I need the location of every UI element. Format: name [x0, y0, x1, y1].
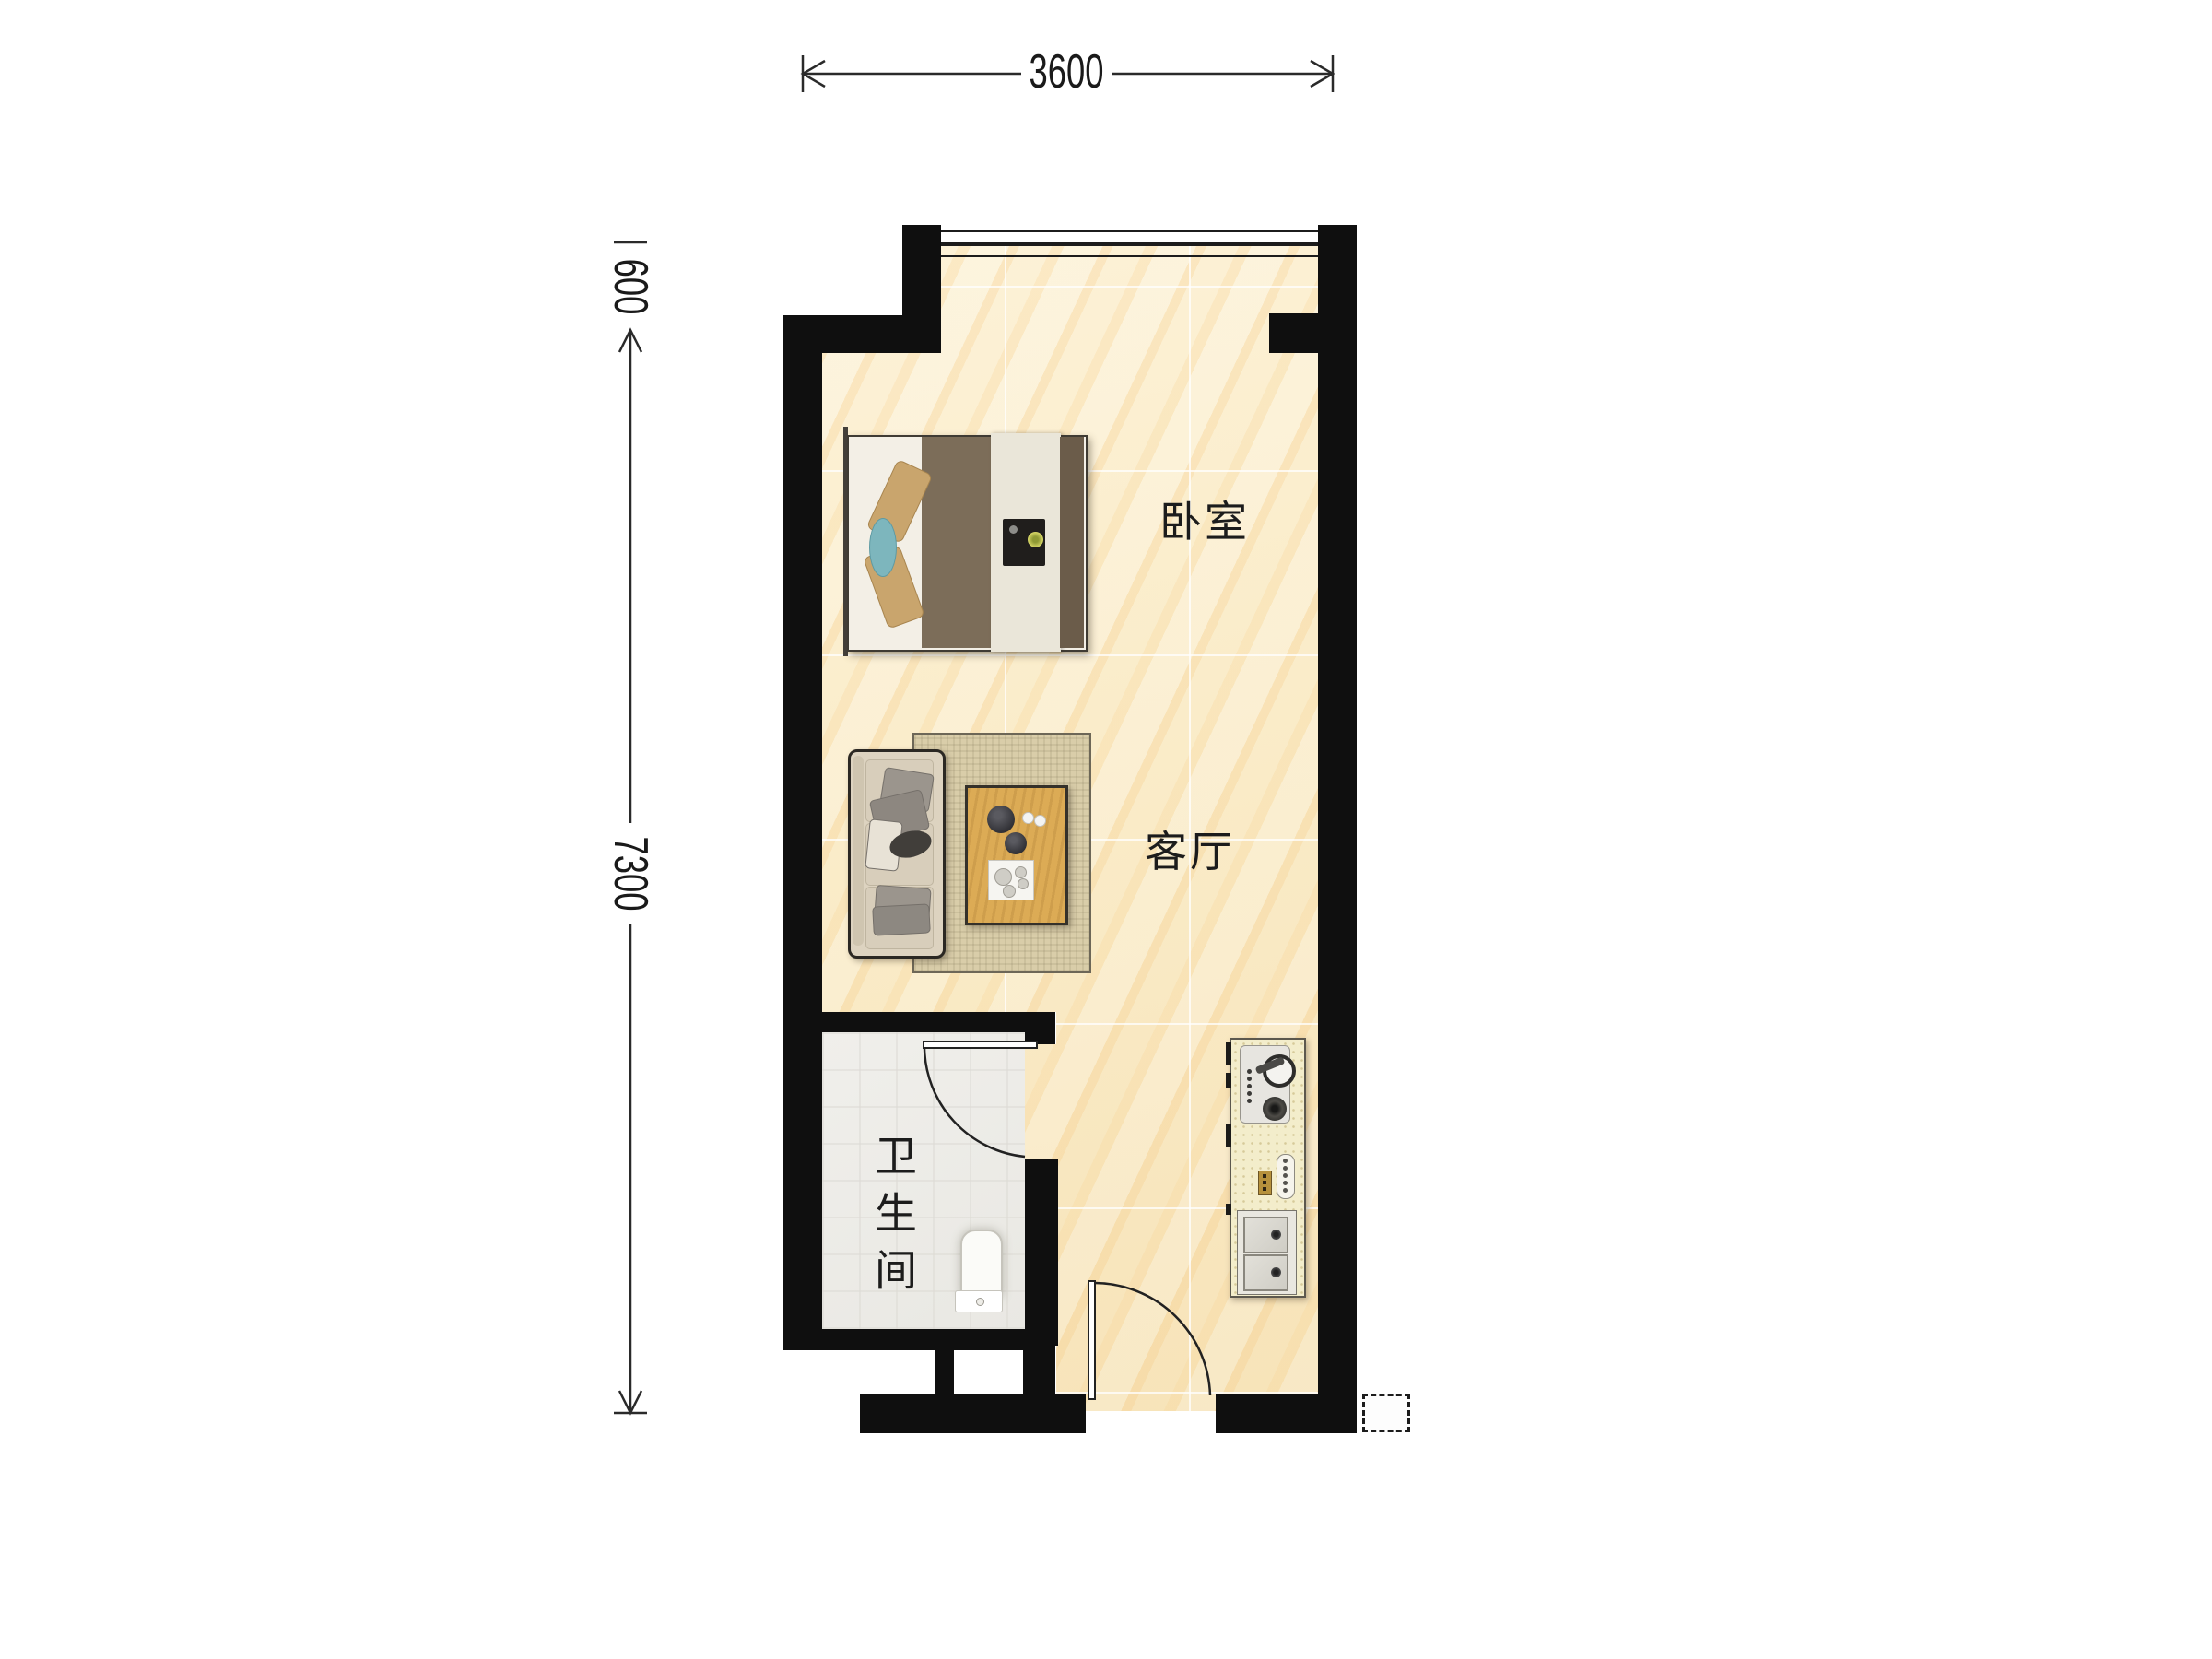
room-label-bedroom: 卧室	[1159, 488, 1250, 549]
dimension-left	[614, 242, 647, 1413]
dimension-label-600: 600	[603, 259, 658, 315]
room-label-bathroom: 卫生间	[863, 1134, 924, 1305]
entry-door	[1088, 1281, 1210, 1399]
room-label-living-room: 客厅	[1145, 818, 1235, 879]
dimension-label-width: 3600	[1030, 44, 1104, 100]
door-swing-arc	[1095, 1283, 1210, 1395]
door-swing-arc	[924, 1048, 1025, 1157]
annotation-overlay	[0, 0, 2212, 1659]
bathroom-door	[924, 1041, 1037, 1157]
floor-plan-canvas: 3600 600 7300 卧室 客厅 卫生间	[0, 0, 2212, 1659]
dimension-label-7300: 7300	[603, 837, 658, 912]
